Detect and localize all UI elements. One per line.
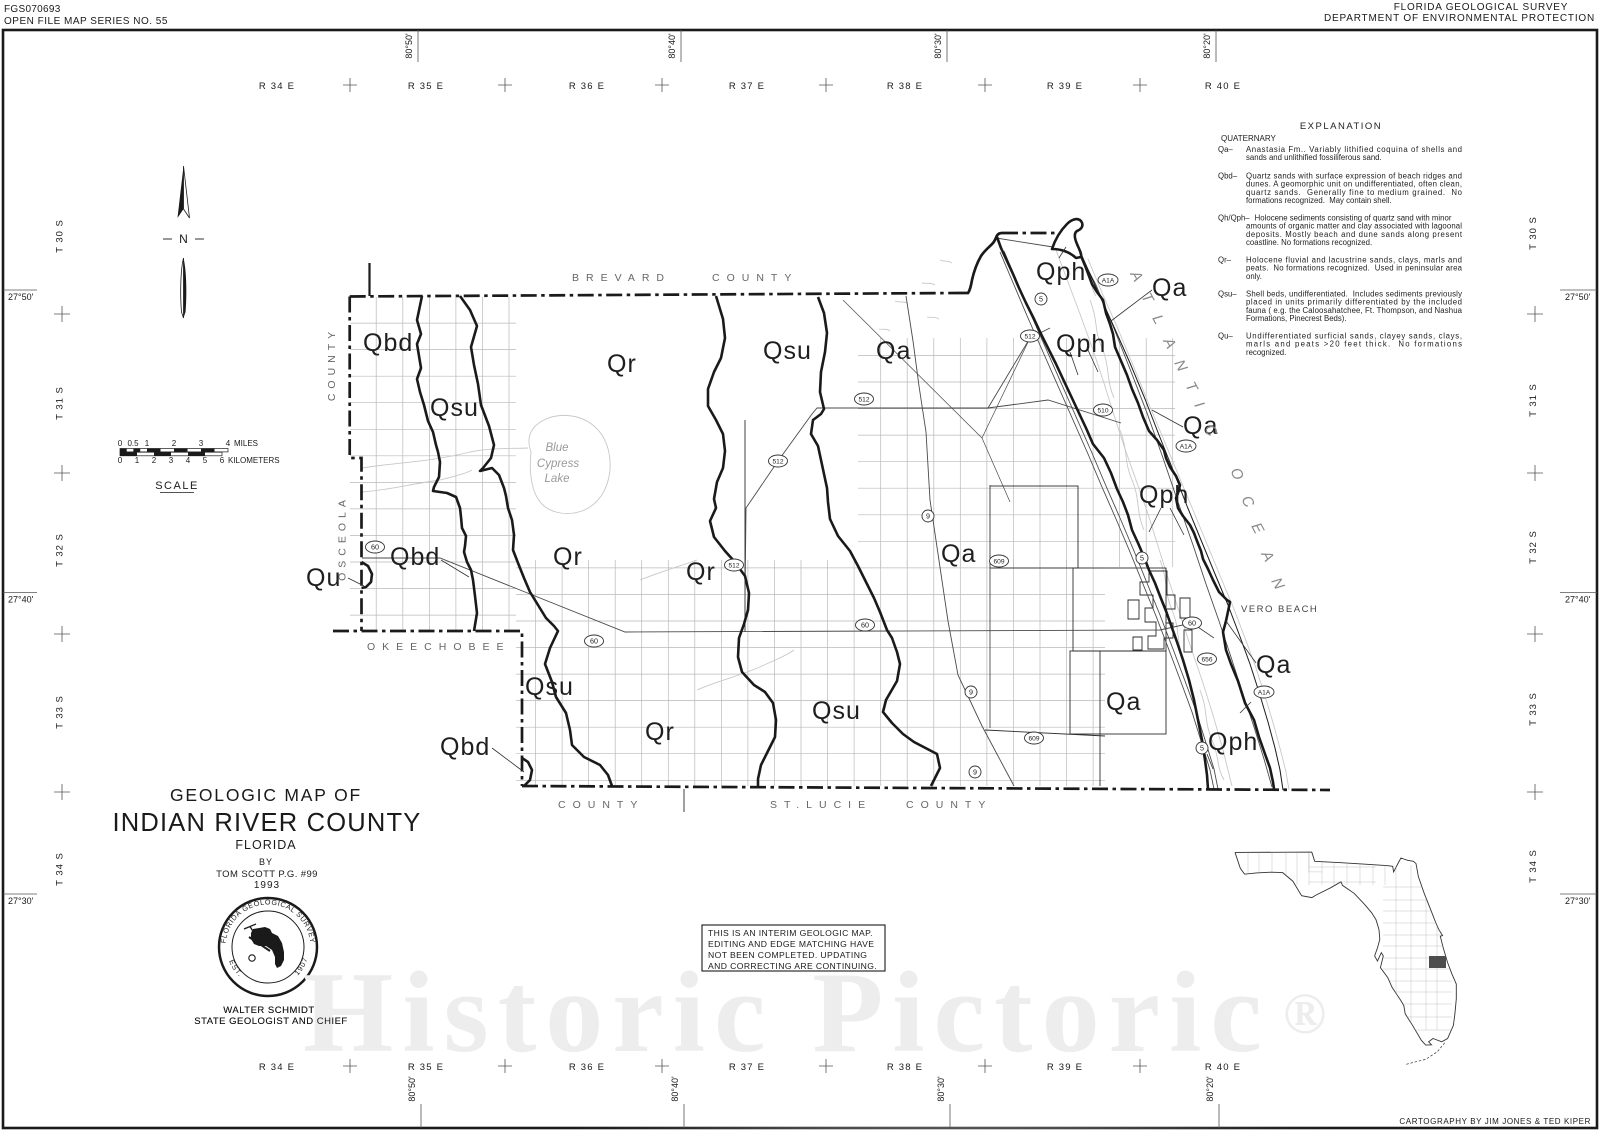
svg-text:1: 1 — [145, 439, 150, 448]
svg-text:60: 60 — [590, 636, 598, 645]
svg-text:2: 2 — [152, 456, 157, 465]
svg-text:QUATERNARY: QUATERNARY — [1221, 134, 1276, 143]
svg-text:FLORIDA: FLORIDA — [235, 838, 296, 852]
svg-text:Qr: Qr — [645, 718, 675, 746]
svg-text:Qsu: Qsu — [525, 673, 574, 701]
svg-text:BY: BY — [259, 857, 273, 867]
svg-text:5: 5 — [1140, 553, 1144, 562]
svg-text:CARTOGRAPHY BY JIM JONES & TED: CARTOGRAPHY BY JIM JONES & TED KIPER — [1399, 1117, 1591, 1126]
svg-text:Qr: Qr — [553, 543, 583, 571]
svg-text:Cypress: Cypress — [537, 458, 579, 470]
svg-text:512: 512 — [772, 458, 783, 465]
svg-text:Qsu: Qsu — [812, 697, 861, 725]
svg-text:R 38 E: R 38 E — [887, 81, 923, 92]
svg-text:STATE GEOLOGIST AND CHIEF: STATE GEOLOGIST AND CHIEF — [194, 1016, 347, 1027]
svg-text:Qph: Qph — [1208, 728, 1258, 756]
svg-text:T 32 S: T 32 S — [1528, 530, 1539, 564]
svg-text:DEPARTMENT OF ENVIRONMENTAL PR: DEPARTMENT OF ENVIRONMENTAL PROTECTION — [1324, 13, 1595, 24]
svg-text:3: 3 — [199, 439, 204, 448]
svg-text:0: 0 — [118, 456, 123, 465]
svg-text:BREVARD: BREVARD — [572, 272, 671, 284]
svg-text:Blue: Blue — [545, 442, 568, 454]
svg-text:KILOMETERS: KILOMETERS — [228, 456, 280, 465]
svg-text:AND CORRECTING ARE CONTINUING.: AND CORRECTING ARE CONTINUING. — [708, 961, 877, 971]
svg-text:sands and unlithified fossilif: sands and unlithified fossiliferous sand… — [1246, 153, 1382, 162]
svg-text:80°50': 80°50' — [404, 33, 414, 59]
svg-text:0: 0 — [118, 439, 123, 448]
svg-text:R 34 E: R 34 E — [259, 1062, 295, 1073]
svg-text:Qph: Qph — [1036, 258, 1086, 286]
svg-text:Formations, Pinecrest Beds).: Formations, Pinecrest Beds). — [1246, 314, 1347, 323]
svg-text:R 35 E: R 35 E — [408, 81, 444, 92]
svg-text:5: 5 — [1200, 743, 1204, 752]
svg-text:510: 510 — [1097, 407, 1108, 414]
svg-text:THIS IS AN INTERIM GEOLOGIC MA: THIS IS AN INTERIM GEOLOGIC MAP. — [708, 928, 873, 938]
svg-text:80°40': 80°40' — [667, 33, 677, 59]
svg-text:A1A: A1A — [1258, 689, 1271, 696]
svg-text:2: 2 — [172, 439, 177, 448]
svg-text:R 40 E: R 40 E — [1205, 1062, 1241, 1073]
svg-text:coastline. No formations recog: coastline. No formations recognized. — [1246, 238, 1372, 247]
svg-text:R 34 E: R 34 E — [259, 81, 295, 92]
svg-text:60: 60 — [861, 620, 869, 629]
svg-text:OSCEOLA: OSCEOLA — [337, 495, 349, 581]
svg-text:27°40': 27°40' — [1565, 595, 1591, 605]
svg-text:512: 512 — [728, 562, 739, 569]
svg-text:9: 9 — [973, 767, 977, 776]
svg-text:Qr: Qr — [607, 350, 637, 378]
svg-text:80°50': 80°50' — [407, 1076, 417, 1102]
svg-text:Qph: Qph — [1056, 330, 1106, 358]
svg-text:T 34 S: T 34 S — [1528, 849, 1539, 883]
svg-text:T 30 S: T 30 S — [55, 219, 66, 253]
svg-text:EDITING AND EDGE MATCHING HAVE: EDITING AND EDGE MATCHING HAVE — [708, 939, 874, 949]
svg-text:R 35 E: R 35 E — [408, 1062, 444, 1073]
svg-text:27°50': 27°50' — [1565, 292, 1591, 302]
svg-text:6: 6 — [220, 456, 225, 465]
svg-text:COUNTY: COUNTY — [558, 799, 644, 811]
svg-text:TOM SCOTT P.G. #99: TOM SCOTT P.G. #99 — [216, 869, 318, 880]
svg-text:Qsu–: Qsu– — [1218, 290, 1237, 299]
svg-text:T 31 S: T 31 S — [55, 386, 66, 420]
svg-text:T 31 S: T 31 S — [1528, 383, 1539, 417]
svg-text:R 37 E: R 37 E — [729, 1062, 765, 1073]
svg-text:ST.LUCIE: ST.LUCIE — [770, 799, 872, 811]
svg-text:80°20': 80°20' — [1205, 1076, 1215, 1102]
svg-text:T 33 S: T 33 S — [55, 695, 66, 729]
svg-text:R 36 E: R 36 E — [569, 1062, 605, 1073]
svg-text:4: 4 — [226, 439, 231, 448]
svg-text:R 40 E: R 40 E — [1205, 81, 1241, 92]
svg-text:Qu–: Qu– — [1218, 332, 1233, 341]
svg-text:80°40': 80°40' — [670, 1076, 680, 1102]
svg-text:512: 512 — [1024, 333, 1035, 340]
svg-text:COUNTY: COUNTY — [326, 327, 338, 401]
svg-text:T 34 S: T 34 S — [55, 852, 66, 886]
svg-text:R 39 E: R 39 E — [1047, 1062, 1083, 1073]
svg-text:Qa: Qa — [1152, 274, 1187, 302]
svg-text:FGS070693: FGS070693 — [4, 4, 61, 15]
svg-text:OKEECHOBEE: OKEECHOBEE — [367, 641, 511, 653]
svg-text:VERO BEACH: VERO BEACH — [1241, 604, 1318, 615]
svg-text:Qph: Qph — [1139, 481, 1189, 509]
svg-text:T 32 S: T 32 S — [55, 533, 66, 567]
svg-text:27°40': 27°40' — [8, 595, 34, 605]
svg-text:512: 512 — [858, 396, 869, 403]
svg-text:1993: 1993 — [254, 880, 280, 891]
svg-text:T 33 S: T 33 S — [1528, 692, 1539, 726]
svg-text:R 37 E: R 37 E — [729, 81, 765, 92]
svg-text:Qr: Qr — [686, 558, 716, 586]
svg-text:60: 60 — [371, 542, 379, 551]
svg-text:recognized.: recognized. — [1246, 348, 1286, 357]
svg-text:Qa–: Qa– — [1218, 145, 1233, 154]
svg-text:COUNTY: COUNTY — [906, 799, 992, 811]
svg-text:COUNTY: COUNTY — [712, 272, 798, 284]
svg-text:9: 9 — [926, 511, 930, 520]
svg-text:80°30': 80°30' — [933, 33, 943, 59]
svg-text:3: 3 — [169, 456, 174, 465]
svg-text:Qr–: Qr– — [1218, 256, 1232, 265]
svg-text:INDIAN RIVER COUNTY: INDIAN RIVER COUNTY — [113, 809, 422, 837]
svg-text:5: 5 — [203, 456, 208, 465]
svg-text:609: 609 — [1028, 735, 1039, 742]
svg-text:T 30 S: T 30 S — [1528, 216, 1539, 250]
svg-text:60: 60 — [1188, 618, 1196, 627]
svg-text:A1A: A1A — [1102, 277, 1115, 284]
svg-text:Lake: Lake — [545, 473, 570, 485]
svg-text:peats. No formations recogniz: peats. No formations recognized. Used in… — [1246, 264, 1463, 273]
svg-text:NOT BEEN COMPLETED. UPDATING: NOT BEEN COMPLETED. UPDATING — [708, 950, 867, 960]
svg-text:GEOLOGIC MAP OF: GEOLOGIC MAP OF — [170, 785, 362, 805]
svg-text:only.: only. — [1246, 272, 1262, 281]
svg-text:Qbd: Qbd — [390, 543, 440, 571]
svg-text:OPEN FILE MAP SERIES NO. 55: OPEN FILE MAP SERIES NO. 55 — [4, 16, 168, 27]
svg-text:Qa: Qa — [1256, 651, 1291, 679]
svg-text:80°30': 80°30' — [936, 1076, 946, 1102]
svg-text:FLORIDA GEOLOGICAL SURVEY: FLORIDA GEOLOGICAL SURVEY — [1394, 2, 1569, 13]
svg-text:Qbd–: Qbd– — [1218, 172, 1238, 181]
svg-text:Qbd: Qbd — [440, 733, 490, 761]
svg-text:WALTER SCHMIDT: WALTER SCHMIDT — [223, 1005, 314, 1016]
svg-text:Qbd: Qbd — [363, 329, 413, 357]
svg-text:Qsu: Qsu — [763, 337, 812, 365]
svg-text:N: N — [179, 232, 188, 246]
svg-text:656: 656 — [1201, 656, 1212, 663]
svg-text:Qa: Qa — [1106, 688, 1141, 716]
svg-text:®: ® — [1283, 981, 1326, 1046]
svg-text:0.5: 0.5 — [127, 439, 139, 448]
svg-text:609: 609 — [993, 558, 1004, 565]
svg-text:27°50': 27°50' — [8, 292, 34, 302]
svg-text:R 39 E: R 39 E — [1047, 81, 1083, 92]
svg-text:27°30': 27°30' — [8, 896, 34, 906]
svg-text:27°30': 27°30' — [1565, 896, 1591, 906]
svg-text:MILES: MILES — [234, 439, 258, 448]
svg-text:R 38 E: R 38 E — [887, 1062, 923, 1073]
svg-text:Qa: Qa — [876, 337, 911, 365]
svg-text:A1A: A1A — [1180, 443, 1193, 450]
svg-text:R 36 E: R 36 E — [569, 81, 605, 92]
svg-text:9: 9 — [969, 687, 973, 696]
svg-text:formations recognized. May co: formations recognized. May contain shell… — [1246, 196, 1392, 205]
svg-text:Qsu: Qsu — [430, 394, 479, 422]
svg-text:SCALE: SCALE — [155, 480, 199, 492]
svg-text:80°20': 80°20' — [1202, 33, 1212, 59]
svg-text:EXPLANATION: EXPLANATION — [1300, 121, 1382, 132]
svg-text:5: 5 — [1039, 294, 1043, 303]
svg-text:4: 4 — [186, 456, 191, 465]
svg-text:Qa: Qa — [941, 540, 976, 568]
svg-text:1: 1 — [135, 456, 140, 465]
